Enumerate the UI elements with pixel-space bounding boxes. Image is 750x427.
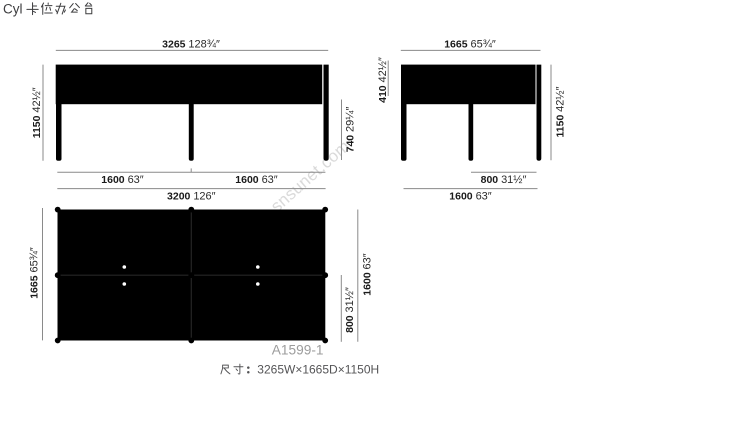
svg-text:1600 63″: 1600 63″: [101, 174, 144, 186]
svg-text:Cyl: Cyl: [3, 2, 23, 17]
svg-text:snsunet.com: snsunet.com: [267, 136, 353, 216]
svg-text:1600 63″: 1600 63″: [235, 174, 278, 186]
svg-text:1665 65¾″: 1665 65¾″: [29, 247, 41, 299]
svg-text:1150 42½″: 1150 42½″: [555, 86, 567, 137]
svg-text:1600 63″: 1600 63″: [361, 253, 373, 296]
svg-text:1150 42½″: 1150 42½″: [31, 87, 43, 138]
svg-text:410 42½″: 410 42½″: [377, 57, 389, 103]
svg-text:A1599-1: A1599-1: [272, 342, 324, 357]
svg-text:1665 65¾″: 1665 65¾″: [444, 39, 496, 51]
svg-text:3265W×1665D×1150H: 3265W×1665D×1150H: [257, 362, 379, 376]
svg-text:3200 126″: 3200 126″: [167, 190, 216, 202]
svg-text:800 31½″: 800 31½″: [481, 174, 527, 186]
svg-text:3265 128¾″: 3265 128¾″: [162, 39, 220, 51]
svg-text:740 29¼″: 740 29¼″: [345, 107, 357, 153]
svg-text:1600 63″: 1600 63″: [449, 190, 492, 202]
svg-text:800 31½″: 800 31½″: [344, 287, 356, 333]
